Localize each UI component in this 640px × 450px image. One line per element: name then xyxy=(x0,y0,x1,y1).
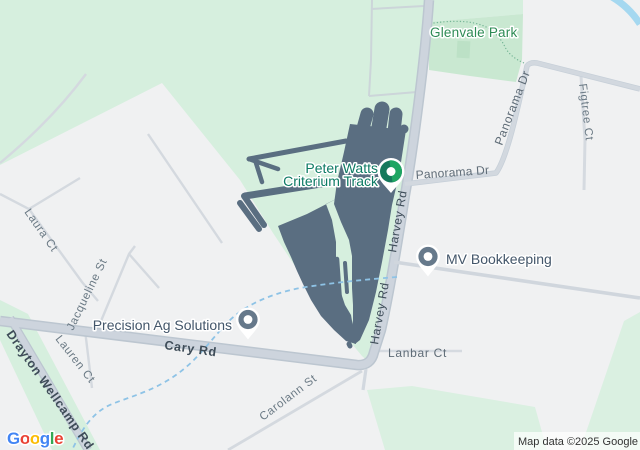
svg-text:Criterium Track: Criterium Track xyxy=(283,173,379,189)
svg-text:Google: Google xyxy=(7,429,63,448)
svg-text:Map data ©2025 Google: Map data ©2025 Google xyxy=(518,436,638,448)
svg-text:Glenvale Park: Glenvale Park xyxy=(430,25,517,40)
svg-text:MV Bookkeeping: MV Bookkeeping xyxy=(446,251,552,267)
svg-text:Precision Ag Solutions: Precision Ag Solutions xyxy=(93,317,232,333)
svg-text:Lanbar Ct: Lanbar Ct xyxy=(388,346,447,360)
